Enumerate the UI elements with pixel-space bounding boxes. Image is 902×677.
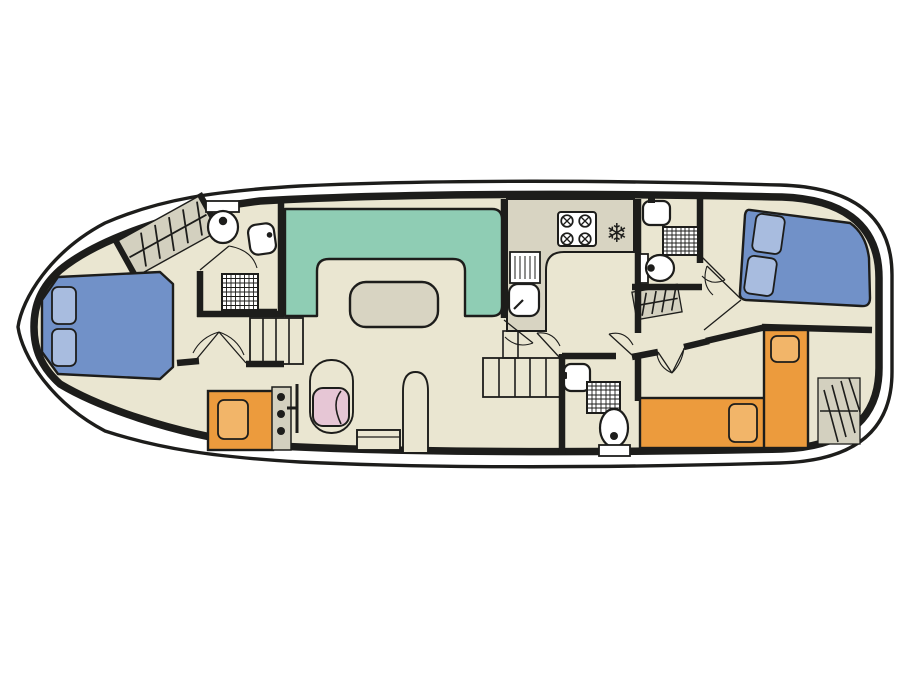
toilet-drain-dot (647, 264, 655, 272)
toilet-drain-dot (219, 217, 227, 225)
pillow-stern-horizontal (729, 404, 757, 442)
basin-tap (648, 198, 655, 203)
saloon-table (350, 282, 438, 327)
pillow-stern-upper (752, 213, 786, 255)
toilet-bath-aft (599, 409, 630, 456)
pillow-bow-lower (52, 329, 76, 366)
pillow-stern-lower (744, 255, 778, 297)
stairs-fore (250, 318, 303, 364)
arched-locker (403, 372, 428, 452)
fridge-snowflake-icon: ❄ (606, 219, 628, 249)
boat-floorplan-page: ❄ (0, 0, 902, 677)
pillow (752, 213, 786, 255)
sink-basin (509, 284, 539, 316)
toilet-bath-top (640, 254, 674, 283)
basin-bath-top (643, 198, 670, 225)
shower-bath-top (663, 227, 698, 255)
console-knob (277, 427, 285, 435)
pillow (744, 255, 778, 297)
toilet-bowl (600, 409, 628, 447)
boat-floorplan-drawing: ❄ (0, 0, 902, 677)
toilet-base (599, 445, 630, 456)
seat-cushion (313, 388, 349, 426)
helm-bench-pillow (218, 400, 248, 439)
basin-body (247, 222, 277, 255)
toilet-bowl (208, 211, 238, 243)
basin-fore (247, 222, 277, 255)
console-knob (277, 410, 285, 418)
console-knob (277, 393, 285, 401)
galley-hob (558, 212, 596, 246)
helm-side-table (357, 430, 400, 450)
pillow-bow-upper (52, 287, 76, 324)
shower-fore (222, 274, 258, 310)
basin-bath-aft (560, 364, 590, 391)
stairs-box (483, 358, 561, 397)
companionway-stern-steps (818, 378, 860, 444)
pillow-stern-vertical (771, 336, 799, 362)
toilet-fore (206, 201, 239, 243)
basin-body (643, 201, 670, 225)
helm-seat (310, 360, 353, 433)
table-top (357, 430, 400, 450)
toilet-drain-dot (610, 432, 618, 440)
basin-tap (560, 372, 567, 379)
